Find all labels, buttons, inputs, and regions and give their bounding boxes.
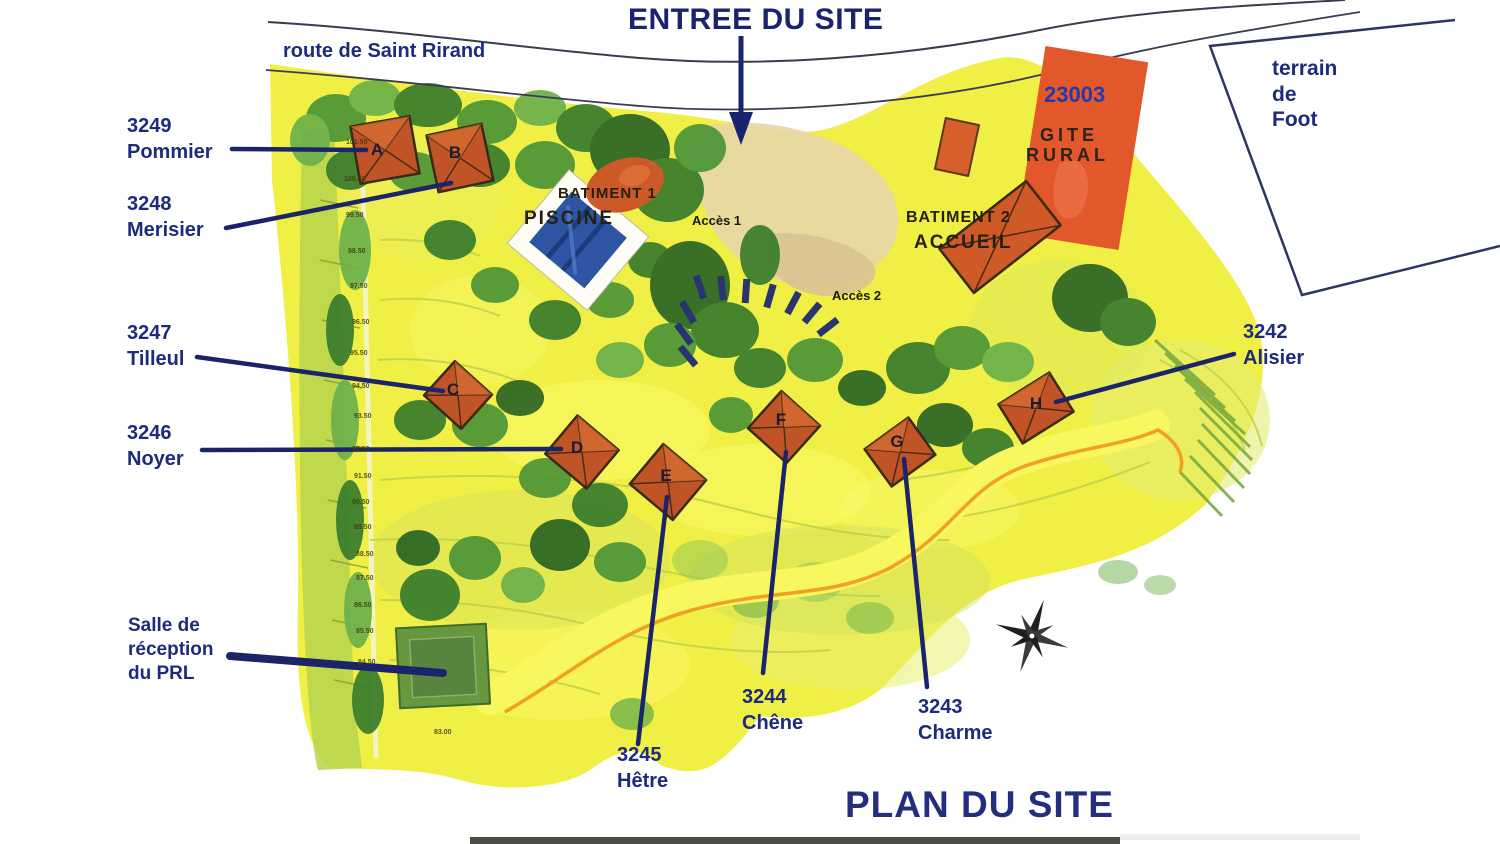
cottage-label-3248: 3248 Merisier <box>127 191 204 243</box>
cottage-c-letter: C <box>447 380 459 400</box>
elevation-mark: 86.50 <box>354 602 372 609</box>
compass-rose <box>984 588 1080 684</box>
reception-label: Salle de réception du PRL <box>128 614 214 686</box>
cottage-3245-code: 3245 <box>617 742 668 768</box>
elevation-mark: 83.00 <box>434 729 452 736</box>
batiment1-label: BATIMENT 1 <box>558 184 657 204</box>
reception-line2: réception <box>128 638 214 662</box>
entrance-title: ENTREE DU SITE <box>628 0 883 39</box>
reception-line3: du PRL <box>128 662 214 686</box>
cottage-3245-tree: Hêtre <box>617 768 668 794</box>
cottage-3244-tree: Chêne <box>742 710 803 736</box>
elevation-mark: 91.50 <box>354 473 372 480</box>
cottage-label-3249: 3249 Pommier <box>127 113 213 165</box>
elevation-mark: 90.50 <box>352 499 370 506</box>
elevation-mark: 84.50 <box>358 659 376 666</box>
elevation-mark: 89.50 <box>354 524 372 531</box>
site-plan-page: ENTREE DU SITE route de Saint Rirand 324… <box>0 0 1500 844</box>
cottage-label-3247: 3247 Tilleul <box>127 320 184 372</box>
cottage-3248-code: 3248 <box>127 191 204 217</box>
scan-artifact <box>470 834 1360 844</box>
elevation-mark: 99.50 <box>346 212 364 219</box>
cottage-b-letter: B <box>449 143 461 163</box>
cottage-3249-tree: Pommier <box>127 139 213 165</box>
elevation-mark: 95.50 <box>350 350 368 357</box>
cottage-3242-code: 3242 <box>1243 319 1304 345</box>
elevation-mark: 92.50 <box>352 446 370 453</box>
cottage-g-letter: G <box>890 432 903 452</box>
cottage-3247-code: 3247 <box>127 320 184 346</box>
cottage-d-letter: D <box>571 438 583 458</box>
gite-rural-line2: RURAL <box>1026 144 1109 167</box>
batiment2-label: BATIMENT 2 <box>906 208 1011 229</box>
elevation-mark: 97.50 <box>350 283 368 290</box>
football-field-boundary <box>1210 20 1500 295</box>
elevation-mark: 87.50 <box>356 575 374 582</box>
cottage-3243-tree: Charme <box>918 720 992 746</box>
accueil-label: ACCUEIL <box>914 231 1012 256</box>
cottage-h-letter: H <box>1030 394 1042 414</box>
cottage-e-letter: E <box>660 466 671 486</box>
cottage-label-3245: 3245 Hêtre <box>617 742 668 794</box>
elevation-mark: 93.50 <box>354 413 372 420</box>
cottage-label-3244: 3244 Chêne <box>742 684 803 736</box>
cottage-f-letter: F <box>776 410 786 430</box>
reception-hall-building <box>396 624 490 709</box>
reception-line1: Salle de <box>128 614 214 638</box>
plan-title: PLAN DU SITE <box>845 781 1114 829</box>
piscine-label: PISCINE <box>524 207 614 232</box>
cottage-3246-tree: Noyer <box>127 446 184 472</box>
cottage-3246-code: 3246 <box>127 420 184 446</box>
football-line2: de <box>1272 82 1337 108</box>
road-label: route de Saint Rirand <box>283 38 485 64</box>
cottage-3247-tree: Tilleul <box>127 346 184 372</box>
cottage-3249-code: 3249 <box>127 113 213 139</box>
cottage-label-3242: 3242 Alisier <box>1243 319 1304 371</box>
elevation-mark: 94.50 <box>352 383 370 390</box>
football-line1: terrain <box>1272 56 1337 82</box>
acces2-label: Accès 2 <box>832 288 881 305</box>
elevation-mark: 98.50 <box>348 248 366 255</box>
football-line3: Foot <box>1272 107 1337 133</box>
cottage-3248-tree: Merisier <box>127 217 204 243</box>
gite-rural-code: 23003 <box>1044 81 1105 110</box>
elevation-mark: 88.50 <box>356 551 374 558</box>
football-field-label: terrain de Foot <box>1272 56 1337 133</box>
elevation-mark: 85.50 <box>356 628 374 635</box>
cottage-3243-code: 3243 <box>918 694 992 720</box>
elevation-mark: 101.50 <box>346 139 367 146</box>
cottage-label-3243: 3243 Charme <box>918 694 992 746</box>
cottage-3242-tree: Alisier <box>1243 345 1304 371</box>
cottage-a-letter: A <box>371 140 383 160</box>
cottage-label-3246: 3246 Noyer <box>127 420 184 472</box>
cottage-3244-code: 3244 <box>742 684 803 710</box>
acces1-label: Accès 1 <box>692 213 741 230</box>
elevation-mark: 96.50 <box>352 319 370 326</box>
elevation-mark: 100.50 <box>344 176 365 183</box>
